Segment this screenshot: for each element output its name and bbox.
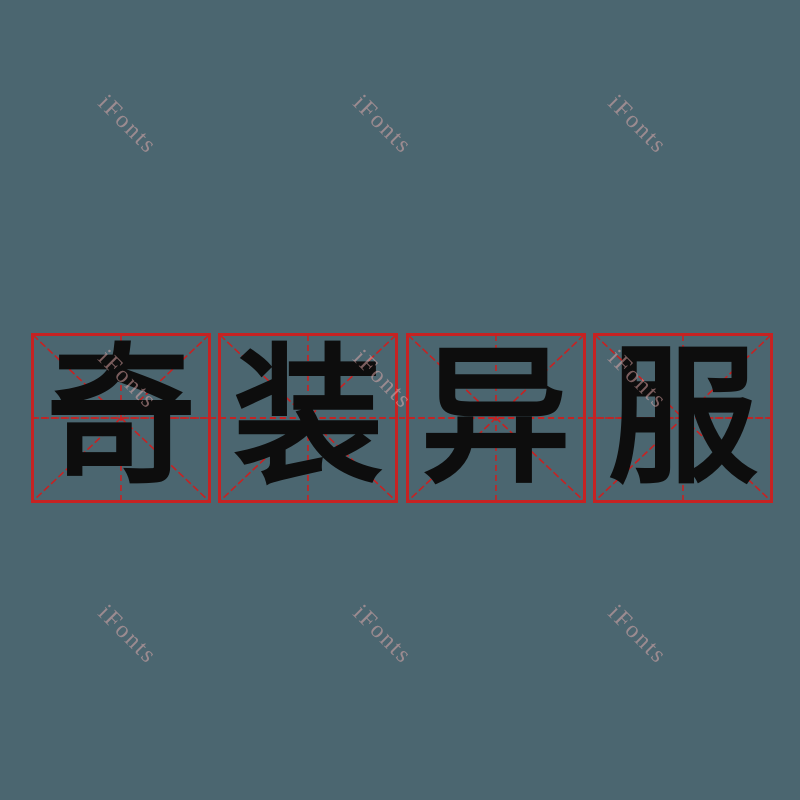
character-grid-row: 奇装异服 [31, 333, 773, 503]
ifonts-watermark: iFonts [602, 600, 672, 670]
ifonts-watermark: iFonts [602, 90, 672, 160]
grid-cell-2: 装 [218, 333, 398, 503]
hanzi-character-3: 异 [406, 333, 586, 503]
ifonts-watermark: iFonts [347, 600, 417, 670]
hanzi-character-2: 装 [218, 333, 398, 503]
hanzi-character-1: 奇 [31, 333, 211, 503]
grid-cell-3: 异 [406, 333, 586, 503]
ifonts-watermark: iFonts [92, 90, 162, 160]
font-preview-canvas: 奇装异服 iFontsiFontsiFontsiFontsiFontsiFont… [0, 0, 800, 800]
ifonts-watermark: iFonts [347, 90, 417, 160]
grid-cell-1: 奇 [31, 333, 211, 503]
ifonts-watermark: iFonts [92, 600, 162, 670]
grid-cell-4: 服 [593, 333, 773, 503]
hanzi-character-4: 服 [593, 333, 773, 503]
